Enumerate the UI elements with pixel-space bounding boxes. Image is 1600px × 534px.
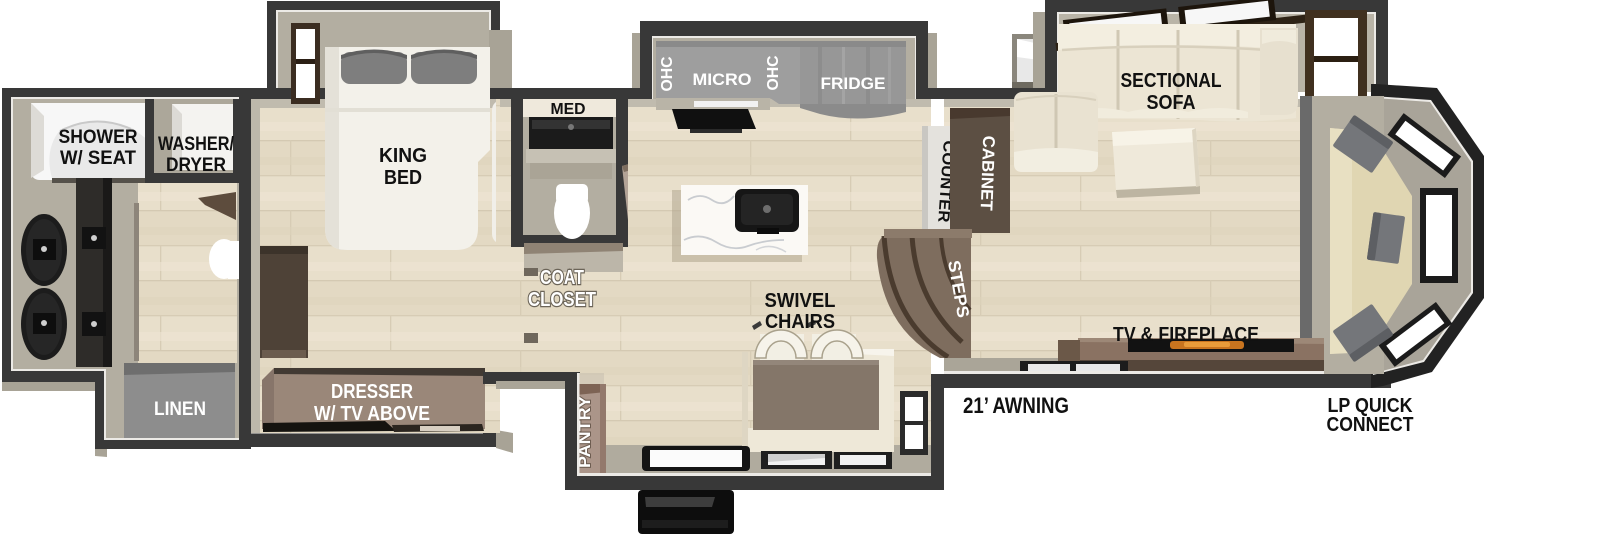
svg-text:OHC: OHC	[659, 56, 676, 91]
svg-text:21’ AWNING: 21’ AWNING	[963, 393, 1069, 418]
svg-text:MED: MED	[551, 101, 586, 118]
svg-text:MICRO: MICRO	[693, 70, 752, 89]
svg-text:BED: BED	[384, 167, 422, 189]
svg-text:SOFA: SOFA	[1147, 92, 1196, 114]
svg-text:OHC: OHC	[765, 55, 782, 90]
svg-text:W/ SEAT: W/ SEAT	[60, 148, 136, 169]
svg-text:SWIVEL: SWIVEL	[765, 290, 836, 312]
svg-text:SECTIONAL: SECTIONAL	[1121, 70, 1222, 92]
svg-text:FRIDGE: FRIDGE	[821, 74, 886, 93]
svg-text:KING: KING	[379, 145, 427, 167]
svg-text:CABINET: CABINET	[977, 135, 999, 211]
svg-text:TV & FIREPLACE: TV & FIREPLACE	[1113, 324, 1259, 346]
svg-text:WASHER/: WASHER/	[158, 134, 235, 155]
svg-text:W/ TV ABOVE: W/ TV ABOVE	[314, 403, 430, 425]
svg-text:CHAIRS: CHAIRS	[765, 311, 835, 333]
svg-text:LINEN: LINEN	[154, 399, 206, 420]
svg-text:DRESSER: DRESSER	[331, 381, 413, 403]
svg-text:CONNECT: CONNECT	[1327, 414, 1414, 436]
svg-text:DRYER: DRYER	[166, 155, 226, 176]
svg-text:CLOSET: CLOSET	[528, 289, 596, 311]
svg-text:COAT: COAT	[540, 267, 584, 289]
svg-text:SHOWER: SHOWER	[59, 127, 138, 148]
